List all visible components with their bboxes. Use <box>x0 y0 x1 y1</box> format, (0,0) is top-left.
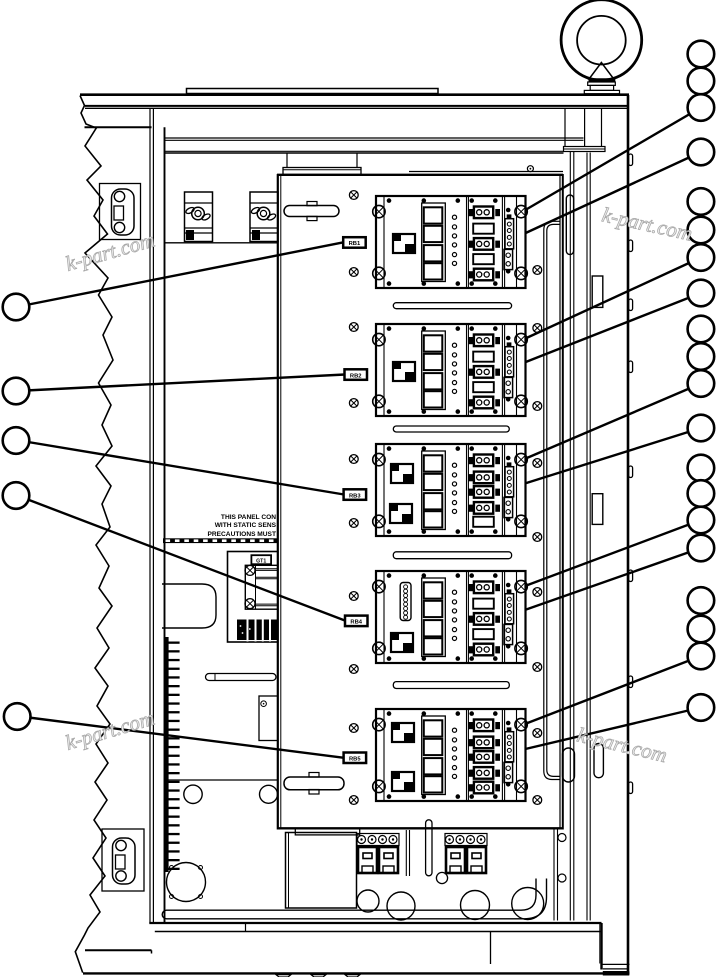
svg-text:RB5: RB5 <box>349 757 361 763</box>
svg-text:WITH STATIC SENS: WITH STATIC SENS <box>215 522 277 529</box>
svg-text:RB1: RB1 <box>349 241 361 247</box>
svg-text:THIS PANEL CON: THIS PANEL CON <box>221 514 276 521</box>
svg-text:GT1: GT1 <box>256 558 266 564</box>
svg-text:PRECAUTIONS MUST: PRECAUTIONS MUST <box>207 531 276 538</box>
svg-text:RB3: RB3 <box>349 493 361 499</box>
svg-text:RB4: RB4 <box>350 620 362 626</box>
svg-text:RB2: RB2 <box>350 373 362 379</box>
